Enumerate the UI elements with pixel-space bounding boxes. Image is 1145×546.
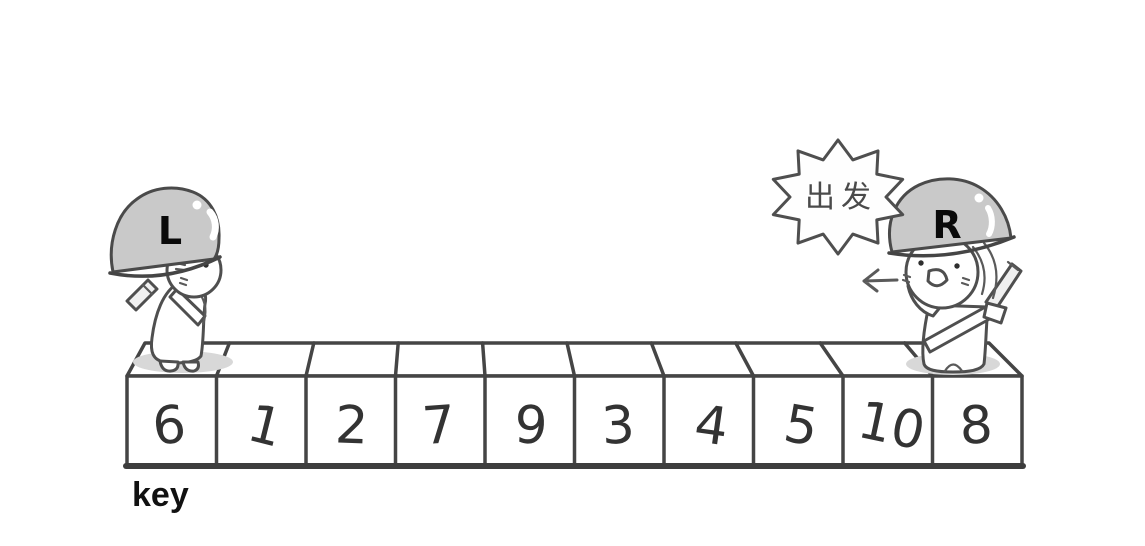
left-figure-stick (127, 280, 157, 310)
speech-bubble: 出发 (773, 140, 902, 254)
array-cell-value: 8 (958, 395, 994, 457)
two-pointer-illustration: 6 1 2 7 9 3 4 5 10 8 (0, 0, 1145, 546)
array-cell-value: 2 (334, 395, 369, 456)
left-figure-feet (160, 361, 178, 371)
left-pointer-label: L (158, 209, 182, 253)
right-pointer-label: R (932, 203, 961, 247)
left-arrow-icon (864, 270, 897, 291)
right-figure-eye (918, 260, 923, 265)
array-cell-value: 9 (513, 395, 549, 457)
speech-bubble-text: 出发 (805, 180, 877, 215)
key-label: key (132, 476, 189, 514)
array-cell-value: 6 (150, 395, 189, 458)
right-figure-mouth (928, 270, 947, 286)
array-cell-value: 7 (420, 395, 457, 457)
left-helmet-shine-dot (193, 201, 202, 210)
right-figure-eye (954, 263, 959, 268)
quicksort-array: 6 1 2 7 9 3 4 5 10 8 (126, 343, 1023, 466)
right-helmet-shine-dot (975, 194, 984, 203)
illustration-canvas: 6 1 2 7 9 3 4 5 10 8 (0, 0, 1145, 546)
array-cell-value: 3 (600, 395, 636, 457)
right-figure-stick (986, 262, 1021, 309)
left-figure-feet (183, 362, 199, 371)
